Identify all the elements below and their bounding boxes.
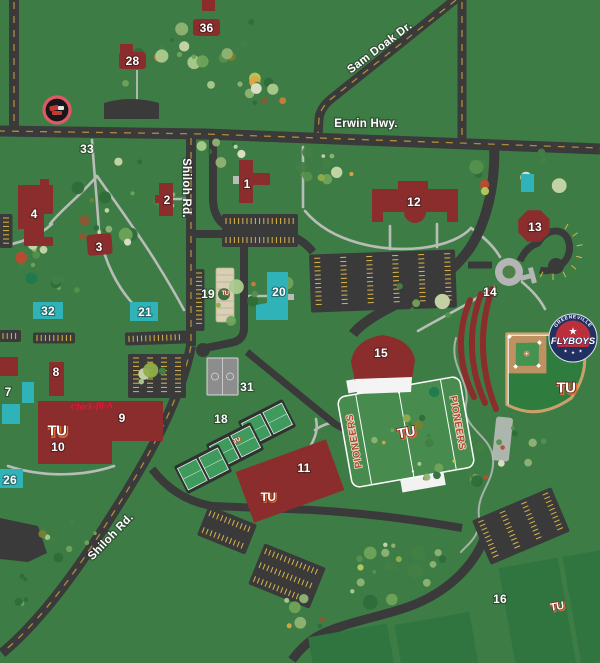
campus-map: PIONEERS PIONEERS bbox=[0, 0, 600, 663]
tree bbox=[237, 150, 245, 158]
tree bbox=[511, 426, 515, 430]
tree bbox=[318, 174, 325, 181]
tree bbox=[481, 187, 489, 195]
tree bbox=[483, 475, 488, 480]
tree bbox=[303, 172, 313, 182]
tree bbox=[15, 598, 23, 606]
turnaround bbox=[548, 258, 564, 274]
tree bbox=[435, 294, 450, 309]
tree bbox=[60, 276, 66, 282]
tree bbox=[427, 434, 431, 438]
tree bbox=[452, 459, 456, 463]
tree bbox=[90, 202, 94, 206]
tu-logo: TUTU bbox=[261, 490, 277, 505]
parking-lot bbox=[0, 214, 13, 248]
tree bbox=[197, 141, 207, 151]
tree bbox=[500, 445, 505, 450]
tree bbox=[435, 549, 442, 556]
tree bbox=[390, 428, 394, 432]
tree bbox=[529, 439, 537, 447]
tree bbox=[541, 438, 547, 444]
tree bbox=[159, 368, 166, 375]
tree bbox=[177, 52, 182, 57]
label-building-12: 12 bbox=[407, 195, 421, 209]
tree bbox=[383, 543, 387, 547]
tree bbox=[552, 178, 567, 193]
tree bbox=[471, 475, 483, 487]
tree bbox=[262, 97, 268, 103]
label-building-28: 28 bbox=[126, 54, 140, 68]
tree bbox=[237, 82, 242, 87]
tree bbox=[381, 549, 389, 557]
basketball-courts bbox=[207, 358, 238, 395]
tree bbox=[356, 556, 362, 562]
tree bbox=[139, 379, 144, 384]
tree bbox=[386, 594, 398, 606]
building-teal-east bbox=[521, 174, 534, 192]
tree bbox=[170, 38, 174, 42]
tu-logo-text: TU bbox=[549, 600, 565, 614]
tree bbox=[391, 544, 395, 548]
parking-lot bbox=[33, 333, 75, 344]
tree bbox=[114, 158, 122, 166]
tree bbox=[317, 624, 322, 629]
tree bbox=[216, 303, 221, 308]
tree bbox=[433, 312, 437, 316]
tree bbox=[226, 316, 236, 326]
tree bbox=[26, 273, 38, 285]
parking-lot bbox=[0, 330, 21, 342]
tree bbox=[24, 597, 28, 601]
tu-logo-text: TU bbox=[261, 490, 276, 504]
parking-lot bbox=[128, 354, 186, 398]
parking-lot bbox=[125, 330, 187, 345]
tree bbox=[538, 149, 546, 157]
label-building-18: 18 bbox=[214, 412, 228, 426]
tree bbox=[23, 578, 27, 582]
label-building-36: 36 bbox=[200, 21, 214, 35]
tree bbox=[357, 578, 365, 586]
flyboys-logo: ★ FLYBOYS GREENEVILLE ★ ★ ★ bbox=[549, 314, 597, 362]
tree bbox=[252, 100, 257, 105]
tree bbox=[382, 441, 386, 445]
tree bbox=[53, 553, 63, 563]
tree bbox=[302, 147, 314, 159]
tree bbox=[429, 387, 439, 397]
tree bbox=[524, 459, 532, 467]
tree bbox=[97, 230, 101, 234]
tu-logo-text: TU bbox=[222, 291, 229, 297]
label-building-2: 2 bbox=[164, 193, 171, 207]
tree bbox=[207, 149, 212, 154]
label-building-14: 14 bbox=[483, 285, 497, 299]
tree bbox=[222, 48, 233, 59]
tree bbox=[364, 547, 377, 560]
tree bbox=[251, 282, 256, 287]
tree bbox=[40, 246, 48, 254]
label-building-10: 10 bbox=[51, 440, 65, 454]
tree bbox=[38, 530, 46, 538]
roundabout-island bbox=[503, 266, 516, 279]
tree bbox=[137, 159, 142, 164]
tree bbox=[132, 243, 136, 247]
tree bbox=[216, 157, 227, 168]
label-building-31: 31 bbox=[240, 380, 254, 394]
tree bbox=[248, 19, 254, 25]
tree bbox=[439, 556, 447, 564]
tree bbox=[419, 415, 425, 421]
tree bbox=[105, 208, 110, 213]
tree bbox=[408, 563, 424, 579]
label-building-3: 3 bbox=[96, 240, 103, 254]
tree bbox=[179, 41, 189, 51]
building-2-wing bbox=[155, 195, 159, 203]
tree bbox=[122, 80, 129, 87]
tree bbox=[229, 279, 244, 294]
tree bbox=[331, 167, 342, 178]
flyboys-team-name: FLYBOYS bbox=[551, 336, 596, 347]
tree bbox=[393, 566, 397, 570]
tree bbox=[319, 617, 325, 623]
tree bbox=[251, 291, 258, 298]
red-circle-business-logo bbox=[44, 97, 70, 123]
tree bbox=[512, 431, 518, 437]
tree bbox=[363, 595, 378, 610]
tree bbox=[321, 159, 331, 169]
tu-logo: TUTU bbox=[396, 422, 418, 442]
tree bbox=[15, 252, 27, 264]
road-label-shiloh-upper: Shiloh Rd. bbox=[180, 158, 192, 218]
tree bbox=[279, 97, 286, 104]
label-building-16: 16 bbox=[493, 592, 507, 606]
tu-logo-text: TU bbox=[557, 380, 576, 397]
tree bbox=[234, 145, 238, 149]
tu-logo: TUTU bbox=[222, 291, 230, 298]
tree bbox=[322, 154, 326, 158]
entry-plaza bbox=[233, 176, 240, 184]
tree bbox=[496, 439, 502, 445]
tree bbox=[74, 287, 80, 293]
label-building-20: 20 bbox=[272, 285, 286, 299]
tree bbox=[155, 49, 168, 62]
tree bbox=[143, 363, 158, 378]
tree bbox=[423, 474, 430, 481]
tree bbox=[412, 299, 420, 307]
building-7-annex bbox=[22, 382, 34, 403]
tree bbox=[196, 55, 208, 67]
label-building-15: 15 bbox=[374, 346, 388, 360]
tree bbox=[296, 162, 307, 173]
tree bbox=[423, 579, 431, 587]
tree bbox=[299, 594, 308, 603]
tu-logo: TUTU bbox=[549, 600, 566, 616]
label-building-33: 33 bbox=[80, 142, 94, 156]
tree bbox=[130, 191, 134, 195]
parking-lot bbox=[309, 249, 457, 312]
label-building-13: 13 bbox=[528, 220, 542, 234]
tree bbox=[469, 160, 483, 174]
label-building-21: 21 bbox=[138, 305, 152, 319]
label-building-26: 26 bbox=[3, 473, 17, 487]
tree bbox=[425, 439, 433, 447]
tree bbox=[124, 239, 131, 246]
label-building-7: 7 bbox=[5, 385, 12, 399]
tree bbox=[411, 307, 415, 311]
tree bbox=[267, 84, 278, 95]
entry-plaza bbox=[287, 294, 294, 300]
label-building-8: 8 bbox=[53, 365, 60, 379]
driveway bbox=[104, 99, 159, 119]
building-7 bbox=[0, 357, 18, 376]
label-building-9: 9 bbox=[119, 411, 126, 425]
tu-logo: TUTU bbox=[48, 423, 68, 442]
label-building-1: 1 bbox=[244, 177, 251, 191]
tree bbox=[430, 561, 437, 568]
tree bbox=[357, 564, 363, 570]
tu-logo: TUTU bbox=[557, 380, 577, 399]
tree bbox=[384, 562, 393, 571]
tree bbox=[84, 540, 89, 545]
tree bbox=[79, 233, 87, 241]
tree bbox=[207, 81, 215, 89]
tu-logo-text: TU bbox=[396, 423, 417, 442]
cul-de-sac bbox=[196, 343, 210, 357]
tree bbox=[540, 157, 546, 163]
tree bbox=[372, 570, 376, 574]
tree bbox=[51, 276, 60, 285]
tree bbox=[289, 601, 301, 613]
tree bbox=[212, 139, 220, 147]
tree bbox=[79, 216, 89, 226]
tree bbox=[411, 546, 426, 561]
tree bbox=[397, 283, 403, 289]
tree bbox=[434, 463, 443, 472]
label-building-11: 11 bbox=[297, 461, 310, 475]
label-building-19: 19 bbox=[201, 287, 215, 301]
tree bbox=[474, 442, 484, 452]
tree bbox=[99, 191, 111, 203]
tree bbox=[31, 263, 35, 267]
tree bbox=[433, 471, 441, 479]
tree bbox=[468, 473, 473, 478]
building-7-annex bbox=[2, 404, 20, 424]
tree bbox=[93, 531, 97, 535]
tree bbox=[72, 181, 85, 194]
tree bbox=[371, 437, 377, 443]
tree bbox=[240, 41, 247, 48]
tree bbox=[32, 251, 40, 259]
tree bbox=[284, 598, 289, 603]
tree bbox=[498, 460, 505, 467]
road-label-erwin-hwy: Erwin Hwy. bbox=[334, 118, 398, 130]
tu-logo-text: TU bbox=[48, 423, 67, 440]
tree bbox=[175, 23, 188, 36]
tree bbox=[349, 172, 353, 176]
tree bbox=[105, 226, 112, 233]
tree bbox=[66, 546, 72, 552]
tree bbox=[396, 556, 402, 562]
tree bbox=[330, 154, 335, 159]
tree bbox=[251, 83, 262, 94]
tree bbox=[403, 414, 411, 422]
building-36 bbox=[202, 0, 215, 11]
tree bbox=[445, 312, 451, 318]
parking-lot bbox=[222, 214, 298, 247]
tree bbox=[69, 520, 75, 526]
tree bbox=[49, 538, 55, 544]
tree bbox=[294, 617, 306, 629]
tree bbox=[287, 623, 292, 628]
tree bbox=[192, 55, 197, 60]
tree bbox=[350, 589, 354, 593]
label-building-4: 4 bbox=[31, 207, 38, 221]
tree bbox=[93, 225, 99, 231]
tree bbox=[417, 462, 421, 466]
label-building-32: 32 bbox=[41, 304, 55, 318]
